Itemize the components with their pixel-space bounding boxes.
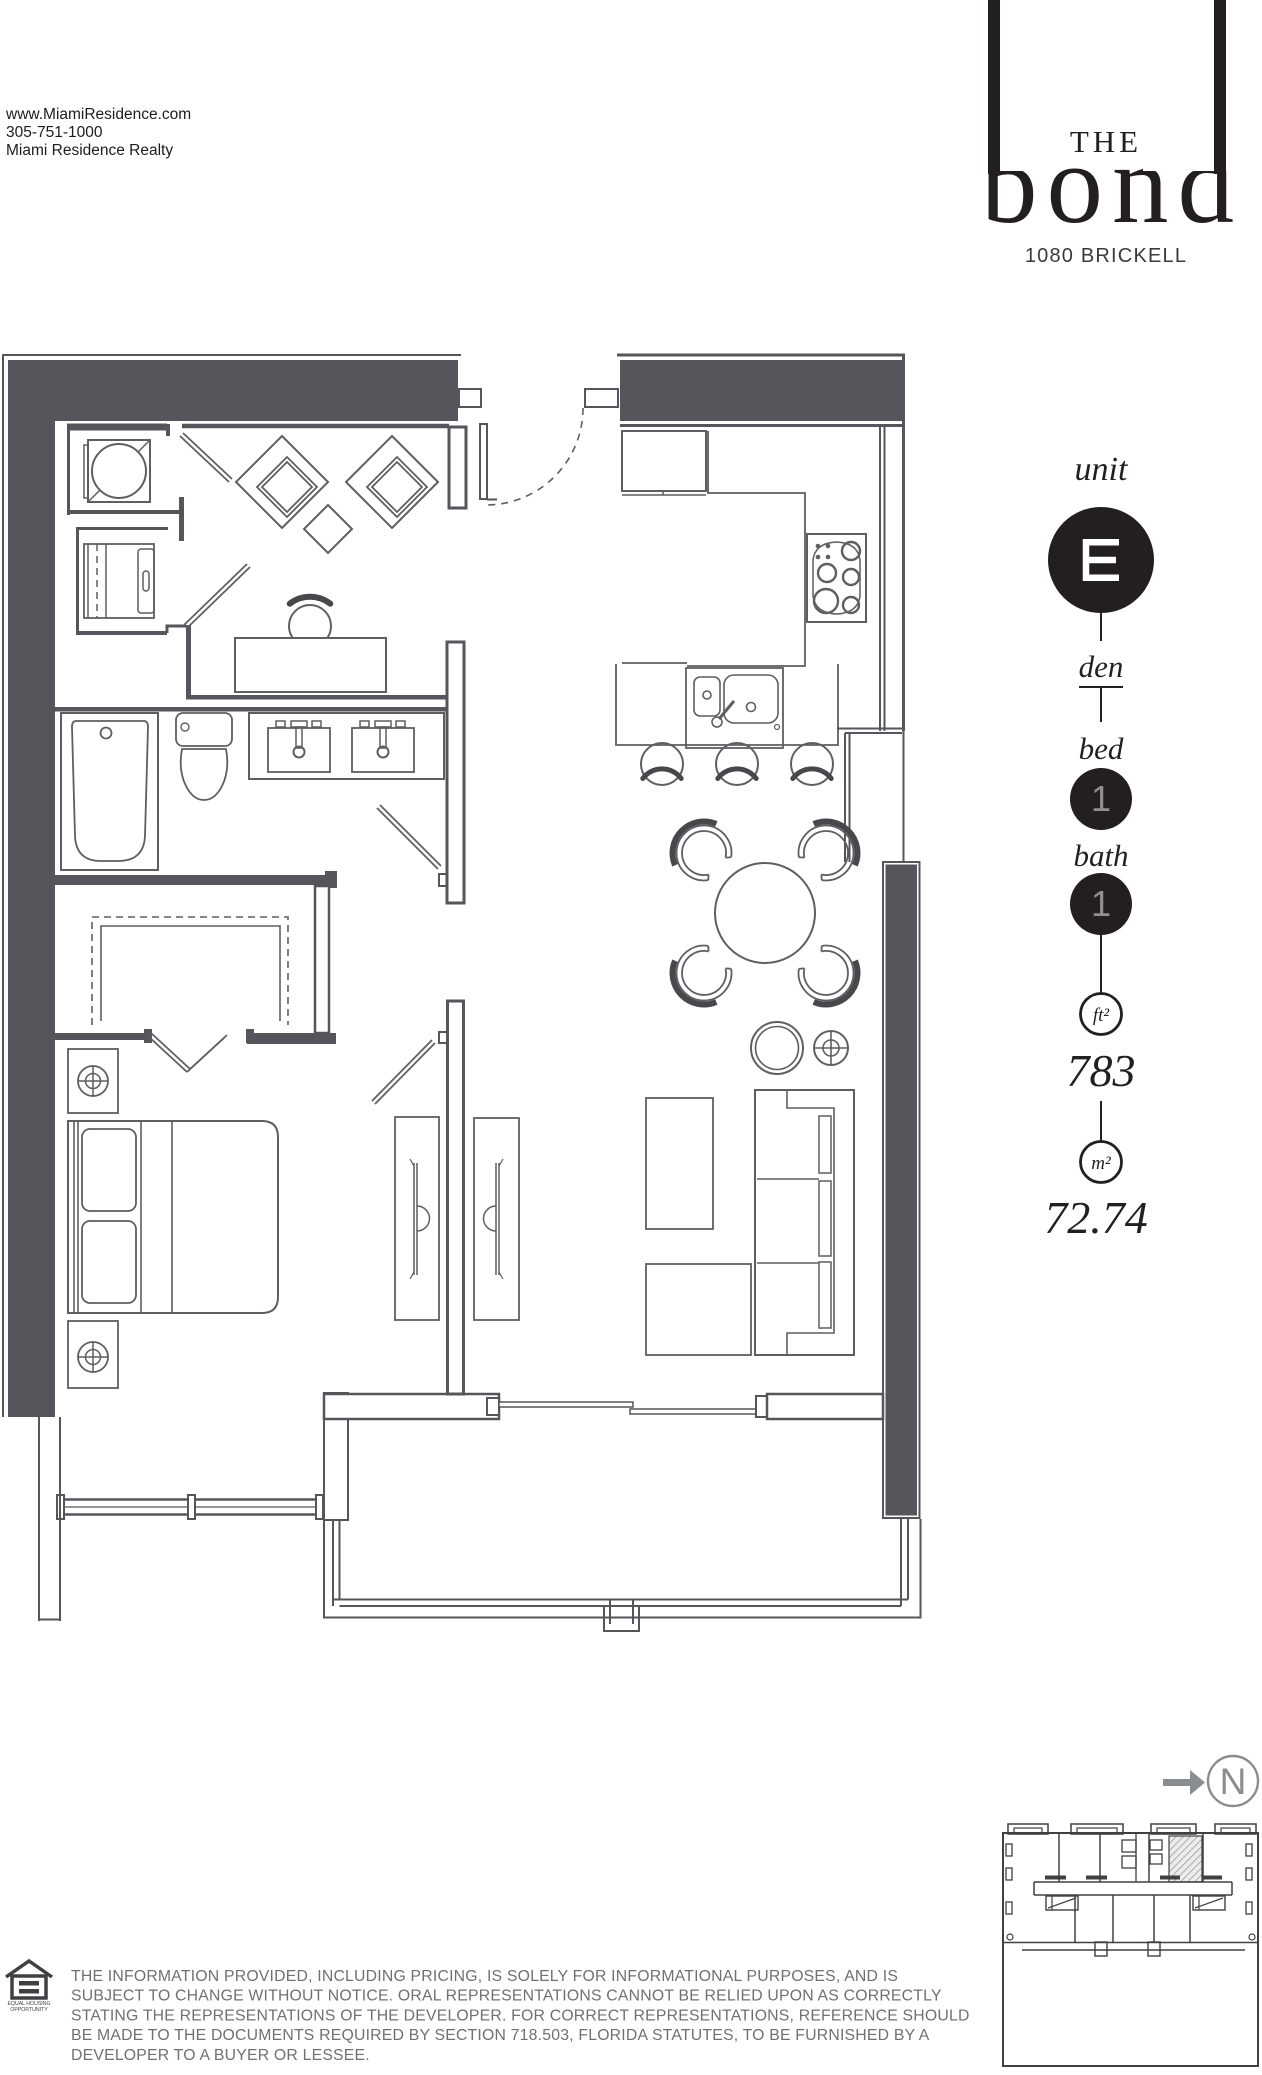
svg-text:den: den — [1079, 649, 1124, 684]
svg-text:1080 BRICKELL: 1080 BRICKELL — [1025, 245, 1187, 267]
svg-text:1: 1 — [1091, 778, 1111, 819]
svg-text:SUBJECT TO CHANGE WITHOUT NOTI: SUBJECT TO CHANGE WITHOUT NOTICE. ORAL R… — [71, 1988, 942, 2005]
svg-text:unit: unit — [1075, 451, 1129, 488]
svg-text:THE: THE — [1070, 124, 1142, 159]
svg-text:bath: bath — [1073, 838, 1128, 873]
svg-text:bed: bed — [1079, 731, 1124, 766]
svg-text:Miami Residence Realty: Miami Residence Realty — [6, 142, 173, 159]
svg-text:BE MADE TO THE DOCUMENTS REQUI: BE MADE TO THE DOCUMENTS REQUIRED BY SEC… — [71, 2027, 930, 2044]
svg-text:ft²: ft² — [1093, 1005, 1110, 1026]
svg-text:N: N — [1220, 1761, 1247, 1802]
svg-text:www.MiamiResidence.com: www.MiamiResidence.com — [5, 106, 191, 123]
svg-text:STATING THE REPRESENTATIONS OF: STATING THE REPRESENTATIONS OF THE DEVEL… — [71, 2007, 970, 2024]
svg-text:1: 1 — [1091, 883, 1111, 924]
svg-text:305-751-1000: 305-751-1000 — [6, 124, 103, 141]
svg-text:DEVELOPER TO A BUYER OR LESSEE: DEVELOPER TO A BUYER OR LESSEE. — [71, 2047, 370, 2064]
svg-text:m²: m² — [1091, 1153, 1111, 1174]
svg-text:783: 783 — [1067, 1045, 1136, 1096]
svg-text:72.74: 72.74 — [1044, 1192, 1148, 1243]
svg-text:THE INFORMATION PROVIDED, INCL: THE INFORMATION PROVIDED, INCLUDING PRIC… — [71, 1968, 898, 1985]
svg-text:OPPORTUNITY: OPPORTUNITY — [10, 2007, 48, 2013]
